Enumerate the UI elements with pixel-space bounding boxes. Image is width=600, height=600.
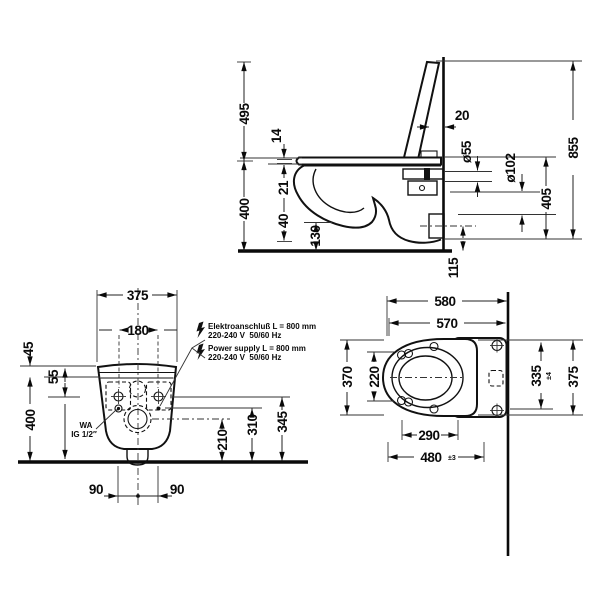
dim-90-left: 90: [89, 482, 103, 497]
dim-400-front: 400: [23, 409, 38, 430]
plan-toilet-drawing: [383, 338, 507, 418]
dim-21: 21: [276, 180, 291, 195]
plan-view: 580 570 370 220 335 ±4 375 290: [340, 292, 583, 556]
wa-label-line2: IG 1/2″: [71, 430, 97, 439]
dim-495: 495: [237, 102, 252, 124]
dim-90-right: 90: [170, 482, 184, 497]
toilet-seat-side: [297, 158, 442, 165]
dim-480-tolerance: ±3: [448, 455, 456, 462]
technical-drawing-page: 495 400 14 21 40 130 20 ø55 ø102: [0, 0, 600, 600]
dim-580: 580: [434, 294, 455, 309]
mounting-screw: [420, 186, 425, 191]
dim-20: 20: [455, 108, 469, 123]
front-toilet-drawing: [98, 288, 176, 505]
electrical-note-en-2: 220-240 V 50/60 Hz: [208, 353, 281, 362]
flush-connector-seal: [424, 168, 430, 180]
dim-335-tolerance: ±4: [546, 372, 553, 380]
electrical-note-en-1: Power supply L = 800 mm: [208, 344, 306, 353]
lightning-icon-de: [197, 322, 206, 339]
electrical-note-de-1: Elektroanschluß L = 800 mm: [208, 322, 316, 331]
side-view: 495 400 14 21 40 130 20 ø55 ø102: [237, 57, 582, 278]
dim-570: 570: [436, 316, 457, 331]
dim-115: 115: [446, 257, 461, 278]
dim-130: 130: [308, 225, 323, 246]
dim-400-side: 400: [237, 198, 252, 219]
front-view: 375 180 45 400 55 210 310: [18, 288, 316, 505]
dim-310: 310: [245, 414, 260, 435]
dim-335: 335: [529, 364, 544, 386]
dim-180: 180: [127, 323, 148, 338]
dim-375-plan: 375: [566, 365, 581, 387]
side-toilet-drawing: [294, 62, 476, 243]
toilet-lid-raised: [404, 62, 439, 164]
dim-375-front: 375: [127, 288, 149, 303]
dim-290: 290: [418, 428, 439, 443]
dim-14: 14: [269, 128, 284, 143]
dim-210: 210: [215, 429, 230, 450]
dim-855: 855: [566, 136, 581, 158]
dim-345: 345: [275, 410, 290, 432]
dim-dia55: ø55: [459, 140, 474, 163]
dim-40: 40: [276, 214, 291, 228]
dim-55: 55: [46, 369, 61, 384]
wa-label-line1: WA: [80, 421, 93, 430]
dim-480: 480: [420, 450, 441, 465]
electrical-note-de-2: 220-240 V 50/60 Hz: [208, 331, 281, 340]
toilet-body-front: [98, 364, 176, 449]
dim-370: 370: [340, 366, 355, 387]
side-dimensions: 495 400 14 21 40 130 20 ø55 ø102: [237, 62, 581, 279]
flush-connector: [403, 169, 443, 179]
bowl-inner-line: [313, 169, 364, 212]
center-dot: [136, 494, 140, 498]
electrical-connection: [157, 407, 161, 411]
dim-220: 220: [367, 366, 382, 387]
dim-dia102: ø102: [503, 153, 518, 182]
dim-45: 45: [21, 341, 36, 356]
mounting-box: [408, 181, 437, 195]
dim-405: 405: [539, 187, 554, 209]
toilet-dimension-drawing: 495 400 14 21 40 130 20 ø55 ø102: [0, 0, 600, 600]
